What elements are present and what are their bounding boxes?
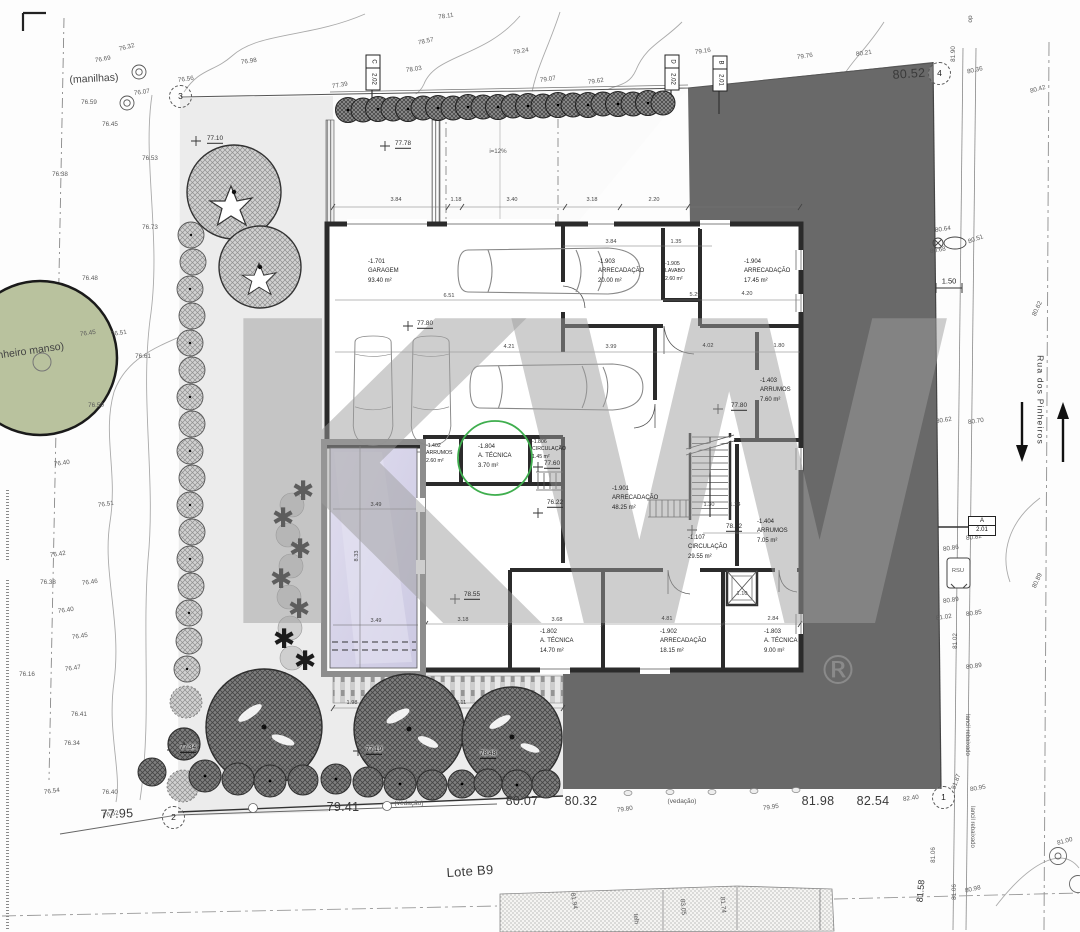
- room-area: 7.05 m²: [757, 537, 788, 546]
- spot-elevation: 80.89: [1032, 573, 1044, 590]
- spot-elevation: 4.02: [703, 344, 714, 350]
- spot-elevation: 1.80: [774, 344, 785, 350]
- spot-elevation: 76.50: [88, 403, 104, 409]
- spot-elevation: 80.64: [935, 226, 951, 234]
- spot-elevation: do: [966, 15, 973, 22]
- room-name: ARRECADAÇÃO: [660, 637, 706, 646]
- spot-elevation: 76.45: [102, 122, 118, 128]
- spot-elevation: 1.18: [451, 198, 462, 204]
- spot-elevation: 76.73: [142, 225, 158, 231]
- room-label: -1.107CIRCULAÇÃO29.55 m²: [688, 534, 727, 562]
- room-area: 20.00 m²: [598, 277, 644, 286]
- room-code: -1.804: [478, 443, 512, 452]
- room-area: 9.00 m²: [764, 647, 798, 656]
- spot-elevation: 78.55: [464, 592, 480, 600]
- spot-elevation: 76.46: [82, 579, 98, 587]
- room-label: -1.903ARRECADAÇÃO20.00 m²: [598, 258, 644, 286]
- room-code: -1.902: [660, 628, 706, 637]
- street-name: Rua dos Pinheiros: [1036, 355, 1045, 445]
- spot-elevation: 80.42: [1030, 85, 1047, 95]
- spot-elevation: 2.20: [649, 198, 660, 204]
- section-flag-C: C2.02: [366, 54, 381, 90]
- room-label: -1.701GARAGEM93.40 m²: [368, 258, 399, 286]
- spot-elevation: 80.32: [565, 795, 598, 808]
- room-code: -1.107: [688, 534, 727, 543]
- spot-elevation: 77.60: [544, 461, 560, 469]
- room-code: -1.701: [368, 258, 399, 267]
- spot-elevation: 80.21: [856, 50, 872, 58]
- spot-elevation: 77.78: [395, 141, 411, 149]
- spot-elevation: 79.16: [695, 48, 711, 56]
- spot-elevation: 76.34: [64, 741, 80, 747]
- room-label: -1.904ARRECADAÇÃO17.45 m²: [744, 258, 790, 286]
- site-plan-canvas: ✱✱✱ ✱✱✱ ✱: [0, 0, 1080, 932]
- spot-elevation: 3.40: [507, 198, 518, 204]
- spot-elevation: 80.89: [943, 597, 959, 605]
- spot-elevation: 79.07: [540, 76, 556, 84]
- spot-elevation: 82.54: [857, 795, 890, 808]
- spot-elevation: 80.95: [970, 785, 987, 794]
- spot-elevation: 76.07: [134, 89, 150, 97]
- spot-elevation: 83.05: [678, 899, 686, 916]
- spot-elevation: 76.69: [95, 56, 112, 65]
- room-code: -1.404: [757, 518, 788, 527]
- spot-elevation: 3.11: [456, 701, 466, 707]
- fence-label: (vedação): [395, 801, 424, 808]
- spot-elevation: 1.30: [704, 503, 715, 509]
- spot-elevation: 3.99: [606, 345, 617, 351]
- spot-elevation: 4.81: [662, 617, 673, 623]
- fence-label: (vedação): [668, 799, 697, 806]
- room-label: -1.806CIRCULAÇÃO1.45 m²: [532, 439, 566, 461]
- room-code: -1.403: [760, 377, 791, 386]
- section-number: 2.01: [714, 69, 727, 90]
- spot-elevation: 77.19: [366, 747, 382, 755]
- room-code: -1.402: [426, 443, 453, 450]
- room-name: A. TÉCNICA: [478, 452, 512, 461]
- room-name: A. TÉCNICA: [540, 637, 574, 646]
- spot-elevation: 76.56: [178, 76, 194, 84]
- spot-elevation: 80.85: [966, 610, 982, 618]
- spot-elevation: 80.98: [965, 885, 982, 894]
- room-label: -1.402ARRUMOS2.60 m²: [426, 443, 453, 465]
- roof-label: telh: [631, 913, 638, 924]
- room-name: CIRCULAÇÃO: [532, 446, 566, 453]
- room-label: -1.802A. TÉCNICA14.70 m²: [540, 628, 574, 656]
- room-name: ARRECADAÇÃO: [598, 267, 644, 276]
- room-label: -1.403ARRUMOS7.60 m²: [760, 377, 791, 405]
- spot-elevation: 76.59: [81, 100, 97, 106]
- spot-elevation: 4.21: [504, 345, 515, 351]
- spot-elevation: 76.40: [102, 790, 118, 796]
- spot-elevation: 81.06: [931, 847, 937, 863]
- room-code: -1.904: [744, 258, 790, 267]
- survey-marker-2: 2: [162, 806, 185, 829]
- curb-label: lancil rebaixado: [964, 714, 970, 756]
- room-label: -1.905LAVABO2.60 m²: [665, 261, 685, 283]
- room-area: 7.60 m²: [760, 396, 791, 405]
- spot-elevation: 79.80: [617, 806, 633, 814]
- spot-elevation: 78.57: [418, 37, 435, 46]
- room-code: -1.901: [612, 485, 658, 494]
- spot-elevation: 1.35: [671, 240, 682, 246]
- spot-elevation: 80.70: [968, 418, 984, 426]
- spot-elevation: 8.33: [355, 551, 361, 562]
- room-label: -1.901ARRECADAÇÃO48.25 m²: [612, 485, 658, 513]
- section-flag-B: B2.01: [713, 55, 728, 91]
- spot-elevation: 79.95: [763, 804, 779, 812]
- room-area: 17.45 m²: [744, 277, 790, 286]
- spot-elevation: 76.51: [98, 501, 114, 509]
- spot-elevation: 76.16: [19, 672, 35, 678]
- spot-elevation: 78.48: [480, 751, 496, 759]
- curb-label: lancil rebaixado: [969, 806, 975, 848]
- room-area: 29.55 m²: [688, 553, 727, 562]
- spot-elevation: 77.80: [417, 321, 433, 329]
- room-name: ARRECADAÇÃO: [744, 267, 790, 276]
- spot-elevation: 78.11: [438, 13, 454, 21]
- spot-elevation: 76.45: [80, 330, 96, 338]
- rsu-label: RSU: [952, 569, 964, 575]
- room-code: -1.903: [598, 258, 644, 267]
- spot-elevation: 79.76: [797, 53, 813, 61]
- spot-elevation: 81.58: [916, 879, 927, 902]
- room-area: 18.15 m²: [660, 647, 706, 656]
- spot-elevation: 76.38: [40, 580, 56, 586]
- room-label: -1.404ARRUMOS7.05 m²: [757, 518, 788, 546]
- spot-elevation: 76.51: [111, 330, 127, 338]
- spot-elevation: 77.34: [180, 745, 196, 753]
- room-label: -1.803A. TÉCNICA9.00 m²: [764, 628, 798, 656]
- spot-elevation: 81.90: [951, 46, 957, 62]
- section-number: 2.02: [367, 68, 380, 89]
- spot-elevation: 76.40: [58, 607, 74, 615]
- room-name: A. TÉCNICA: [764, 637, 798, 646]
- section-letter: A: [969, 517, 995, 526]
- room-name: ARRUMOS: [757, 527, 788, 536]
- room-label: -1.804A. TÉCNICA3.70 m²: [478, 443, 512, 471]
- spot-elevation: 3.84: [606, 240, 617, 246]
- spot-elevation: 76.40: [54, 460, 70, 468]
- room-area: 2.60 m²: [426, 458, 453, 465]
- spot-elevation: 76.48: [82, 276, 98, 282]
- room-area: 14.70 m²: [540, 647, 574, 656]
- section-flag-A: A2.01: [968, 516, 996, 536]
- spot-elevation: 3.18: [587, 198, 598, 204]
- spot-elevation: 4.20: [742, 292, 753, 298]
- spot-elevation: 81.02: [953, 633, 959, 649]
- spot-elevation: 76.22: [547, 500, 563, 508]
- sidewalk-width-dim: 1.50: [942, 277, 957, 285]
- spot-elevation: 79.41: [327, 801, 360, 814]
- room-area: 93.40 m²: [368, 277, 399, 286]
- spot-elevation: 76.32: [119, 43, 136, 53]
- spot-elevation: 81.74: [718, 897, 726, 914]
- spot-elevation: 79.24: [513, 48, 530, 57]
- spot-elevation: 77.39: [332, 82, 349, 91]
- manilhas-label: (manilhas): [69, 72, 118, 85]
- room-label: -1.902ARRECADAÇÃO18.15 m²: [660, 628, 706, 656]
- spot-elevation: 81.94: [568, 892, 577, 909]
- section-flag-D: D2.02: [665, 54, 680, 90]
- room-name: ARRUMOS: [760, 386, 791, 395]
- spot-elevation: 80.89: [966, 663, 982, 671]
- survey-marker-4: 4: [928, 62, 951, 85]
- pine-tree-label: (pinheiro manso): [0, 341, 65, 362]
- spot-elevation: 77.80: [731, 403, 747, 411]
- spot-elevation: 3.49: [371, 503, 382, 509]
- room-code: -1.905: [665, 261, 685, 268]
- spot-elevation: 3.84: [391, 198, 402, 204]
- spot-elevation: 76.41: [71, 712, 87, 718]
- spot-elevation: 78.22: [726, 524, 742, 532]
- section-number: 2.02: [666, 68, 679, 89]
- spot-elevation: 76.38: [52, 172, 68, 178]
- spot-elevation: 79.62: [588, 78, 604, 86]
- room-name: ARRUMOS: [426, 450, 453, 457]
- ramp-slope-label: i=12%: [489, 149, 506, 155]
- spot-elevation: 80.36: [967, 66, 984, 75]
- label-layer: (manilhas)(pinheiro manso)(vedação)(veda…: [0, 0, 1080, 932]
- spot-elevation: 1.98: [347, 701, 358, 707]
- section-letter: B: [714, 56, 727, 69]
- section-letter: C: [367, 55, 380, 68]
- spot-elevation: 80.52: [892, 67, 926, 82]
- spot-elevation: 81.06: [952, 884, 958, 900]
- spot-elevation: 5.29: [690, 293, 701, 299]
- room-name: LAVABO: [665, 268, 685, 275]
- room-area: 3.70 m²: [478, 462, 512, 471]
- spot-elevation: 80.07: [506, 795, 539, 808]
- spot-elevation: 76.61: [135, 354, 151, 360]
- spot-elevation: 6.51: [444, 294, 455, 300]
- spot-elevation: 77.10: [207, 136, 223, 144]
- spot-elevation: 3.49: [371, 619, 382, 625]
- room-area: 48.25 m²: [612, 504, 658, 513]
- spot-elevation: 81.98: [802, 795, 835, 808]
- spot-elevation: 1.24: [730, 503, 741, 509]
- spot-elevation: 80.86: [943, 545, 959, 553]
- spot-elevation: 1.10: [737, 592, 748, 598]
- room-name: GARAGEM: [368, 267, 399, 276]
- spot-elevation: 76.42: [50, 551, 66, 559]
- spot-elevation: 3.68: [552, 618, 563, 624]
- room-area: 1.45 m²: [532, 454, 566, 461]
- room-area: 2.60 m²: [665, 276, 685, 283]
- lot-label: Lote B9: [446, 863, 494, 879]
- section-letter: D: [666, 55, 679, 68]
- spot-elevation: 81.02: [936, 614, 952, 622]
- survey-marker-1: 1: [932, 786, 955, 809]
- spot-elevation: 76.53: [142, 156, 158, 162]
- spot-elevation: 2.84: [768, 617, 779, 623]
- spot-elevation: 82.40: [903, 795, 919, 803]
- survey-marker-3: 3: [169, 85, 192, 108]
- room-name: CIRCULAÇÃO: [688, 543, 727, 552]
- spot-elevation: 76.54: [44, 788, 60, 796]
- spot-elevation: 80.62: [936, 417, 952, 425]
- room-code: -1.803: [764, 628, 798, 637]
- section-number: 2.01: [969, 526, 995, 535]
- spot-elevation: 81.87: [951, 774, 962, 791]
- spot-elevation: 80.68: [930, 247, 947, 256]
- spot-elevation: 76.98: [241, 58, 257, 66]
- spot-elevation: 78.03: [406, 66, 422, 74]
- spot-elevation: 3.18: [458, 618, 469, 624]
- room-name: ARRECADAÇÃO: [612, 494, 658, 503]
- spot-elevation: 76.45: [72, 633, 88, 641]
- spot-elevation: 80.62: [1032, 301, 1044, 318]
- spot-elevation: 80.51: [968, 234, 985, 245]
- spot-elevation: 76.47: [65, 665, 81, 673]
- room-code: -1.802: [540, 628, 574, 637]
- spot-elevation: 81.00: [1057, 837, 1074, 847]
